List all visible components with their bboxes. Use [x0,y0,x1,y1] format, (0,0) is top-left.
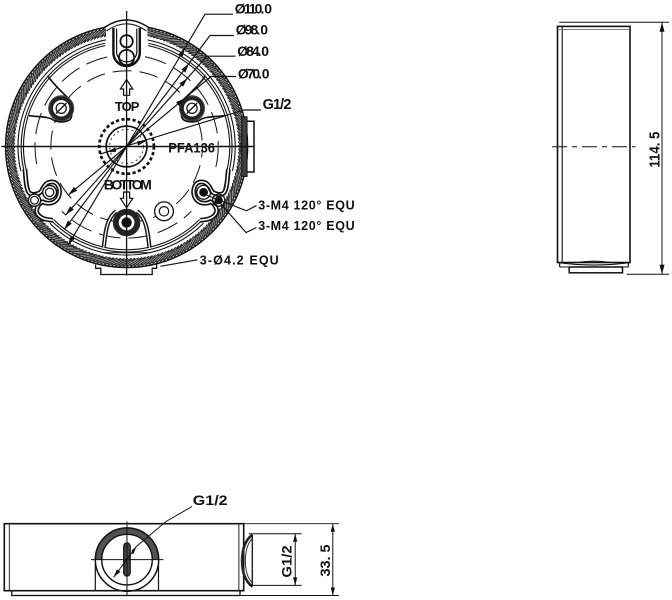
svg-text:114. 5: 114. 5 [648,132,664,168]
svg-text:33. 5: 33. 5 [317,544,333,576]
svg-text:Ø84. 0: Ø84. 0 [237,43,269,59]
svg-text:Ø110. 0: Ø110. 0 [235,0,273,16]
svg-text:TOP: TOP [115,99,140,114]
svg-text:3-Ø4.2 EQU: 3-Ø4.2 EQU [200,253,279,267]
svg-text:G1/2: G1/2 [279,545,295,577]
svg-text:BOTTOM: BOTTOM [104,177,152,193]
svg-text:PFA136: PFA136 [168,140,215,156]
svg-text:G1/2: G1/2 [263,97,292,113]
svg-text:G1/2: G1/2 [193,492,228,508]
svg-text:Ø98. 0: Ø98. 0 [236,22,269,38]
svg-text:3-M4 120° EQU: 3-M4 120° EQU [258,219,355,233]
svg-text:Ø70. 0: Ø70. 0 [238,65,270,81]
svg-text:3-M4 120° EQU: 3-M4 120° EQU [258,198,355,212]
